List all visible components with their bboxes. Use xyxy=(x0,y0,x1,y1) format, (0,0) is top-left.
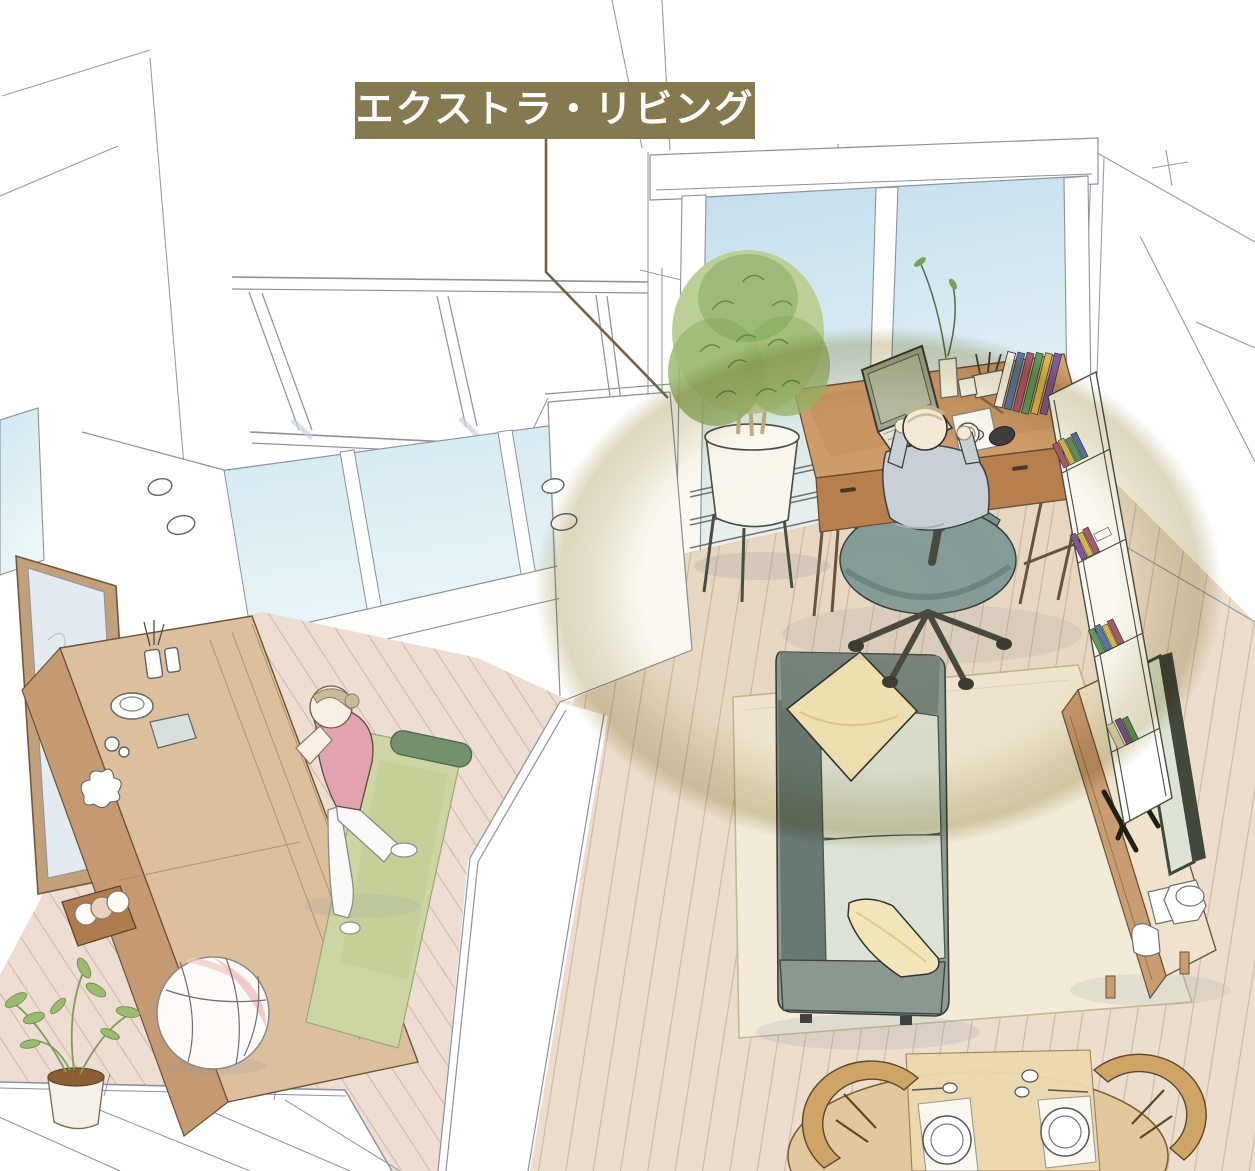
dining-area xyxy=(788,1050,1206,1171)
scene-canvas xyxy=(0,0,1255,1171)
callout-label-extra-living: エクストラ・リビング xyxy=(355,82,755,139)
illustration-room-perspective: エクストラ・リビング xyxy=(0,0,1255,1171)
highlight-zone xyxy=(535,326,1223,850)
